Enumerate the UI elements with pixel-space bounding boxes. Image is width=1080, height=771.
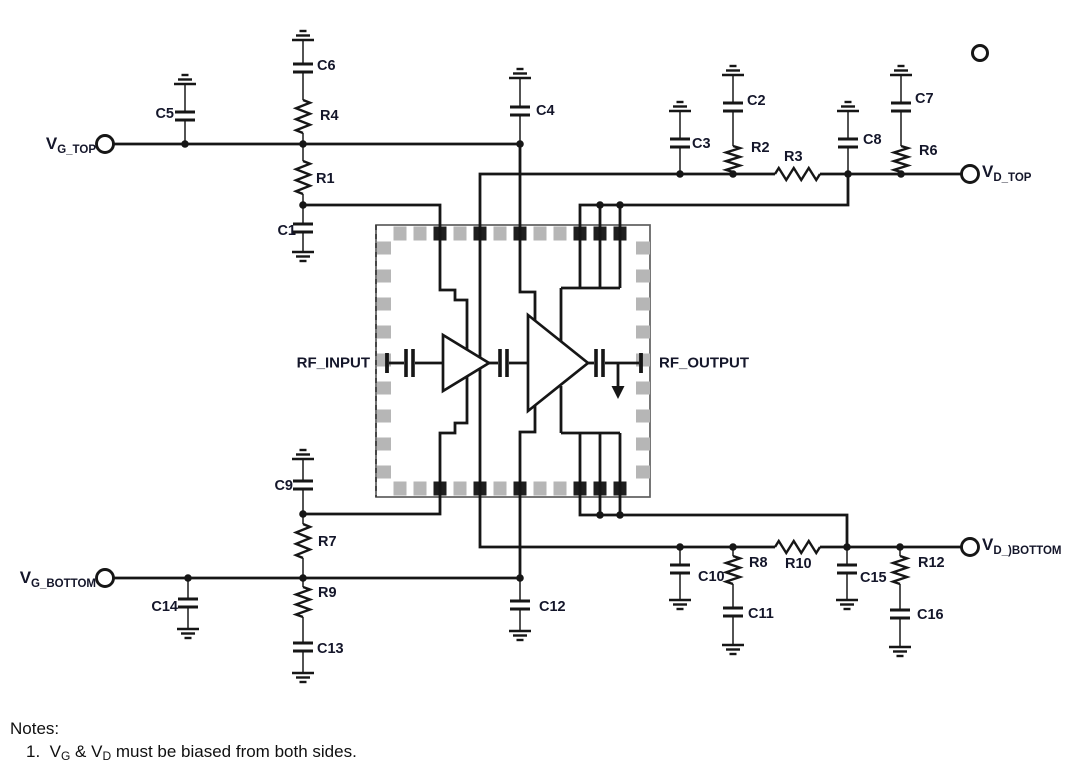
notes-title: Notes: — [10, 719, 59, 739]
note-item: 1. VG & VD must be biased from both side… — [26, 742, 357, 762]
note-text: must be biased from both sides. — [111, 742, 357, 761]
rf-ground-arrow — [612, 386, 625, 399]
note-text: & V — [70, 742, 102, 761]
circuit-schematic — [0, 0, 1080, 771]
package-pads — [377, 227, 650, 496]
note-subscript: G — [61, 749, 70, 763]
package-outline — [376, 225, 650, 497]
note-text: 1. V — [26, 742, 61, 761]
note-subscript: D — [102, 749, 111, 763]
decorative-circle — [973, 46, 988, 61]
schematic-canvas: C1C2C3C4C5C6C7C8C9C10C11C12C13C14C15C16R… — [0, 0, 1080, 771]
amplifier-stage-2 — [528, 315, 588, 411]
